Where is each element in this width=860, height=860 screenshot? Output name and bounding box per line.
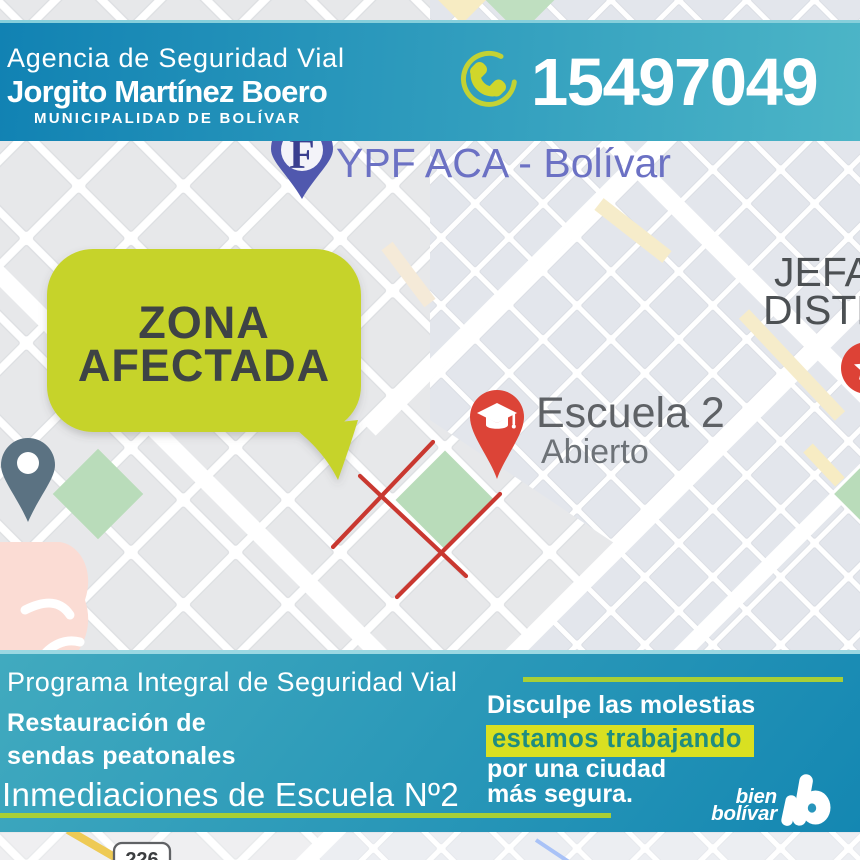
svg-text:AFECTADA: AFECTADA xyxy=(78,340,330,391)
svg-text:Escuela 2: Escuela 2 xyxy=(536,389,725,437)
svg-text:226: 226 xyxy=(125,849,158,860)
svg-text:DISTRI: DISTRI xyxy=(763,287,860,333)
svg-text:Abierto: Abierto xyxy=(541,433,649,471)
svg-text:YPF ACA - Bolívar: YPF ACA - Bolívar xyxy=(336,140,671,186)
